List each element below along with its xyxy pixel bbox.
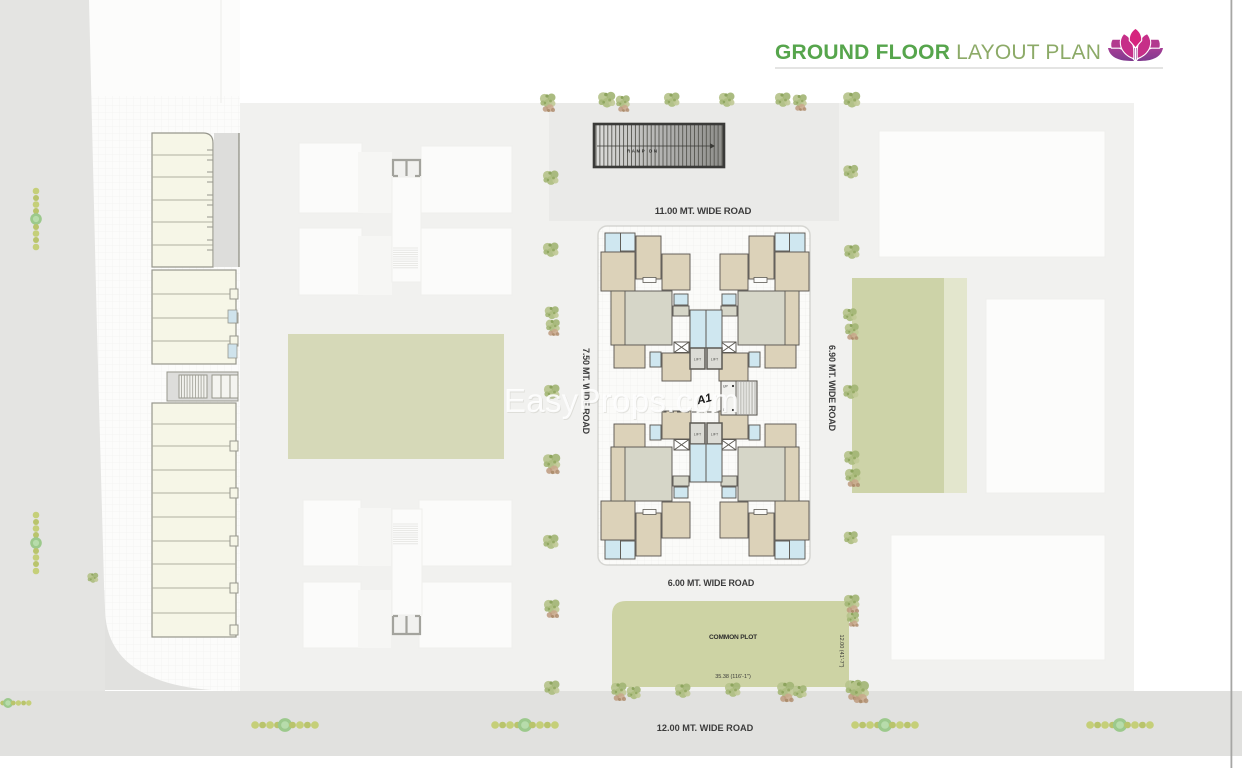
svg-text:LIFT: LIFT (694, 358, 702, 362)
svg-text:6.90 MT. WIDE ROAD: 6.90 MT. WIDE ROAD (827, 345, 837, 432)
svg-text:12.00 (41'-7"): 12.00 (41'-7") (838, 635, 844, 668)
svg-text:GROUND FLOOR LAYOUT PLAN: GROUND FLOOR LAYOUT PLAN (775, 41, 1101, 64)
svg-text:LIFT: LIFT (711, 433, 719, 437)
svg-text:35.38 (116'-1"): 35.38 (116'-1") (715, 674, 751, 680)
svg-text:11.00 MT. WIDE ROAD: 11.00 MT. WIDE ROAD (655, 206, 752, 217)
svg-text:6.00 MT. WIDE ROAD: 6.00 MT. WIDE ROAD (668, 578, 755, 588)
svg-text:LIFT: LIFT (711, 358, 719, 362)
svg-text:COMMON PLOT: COMMON PLOT (709, 634, 757, 641)
svg-text:LIFT: LIFT (694, 433, 702, 437)
svg-text:12.00 MT. WIDE ROAD: 12.00 MT. WIDE ROAD (657, 723, 754, 733)
svg-text:RAMP DN: RAMP DN (627, 149, 659, 154)
